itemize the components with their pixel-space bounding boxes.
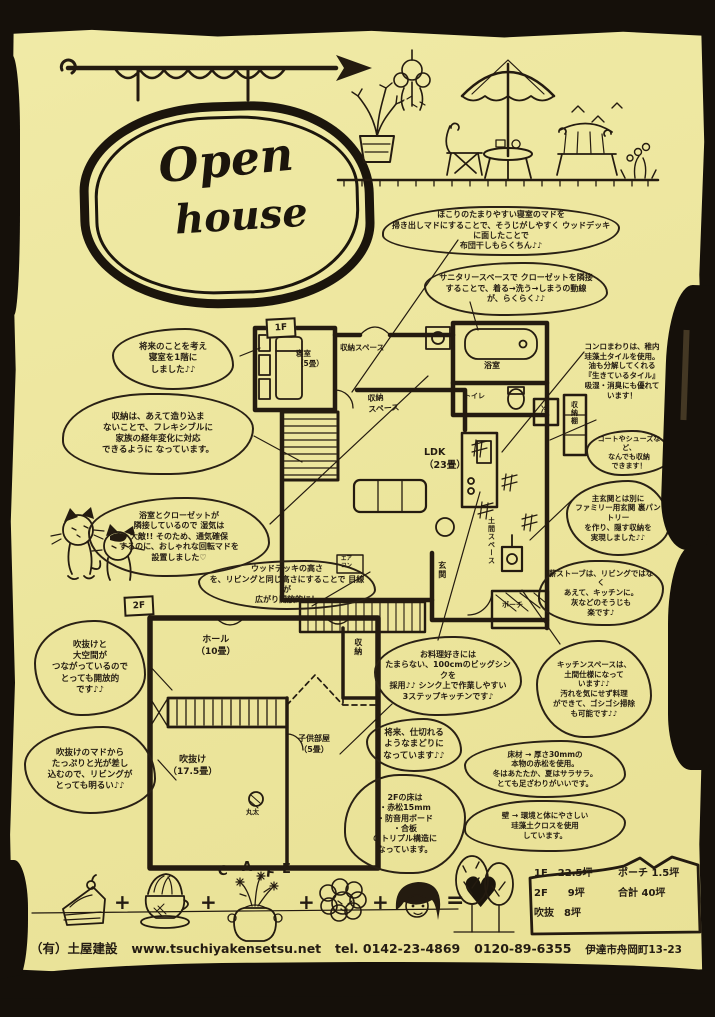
note-partition: 将来、仕切れる ようなまどりに なっています♪♪ [366,718,462,772]
area-table: 1F 22.5坪ポーチ 1.5坪 2F 9坪合計 40坪 吹抜 8坪 [534,864,698,924]
plus-sign: + [298,890,315,914]
note-wall-material: 壁 → 環境と体にやさしい 珪藻土クロスを使用 しています。 [464,800,626,852]
trees-icon [452,848,516,936]
teacup-icon [134,868,196,930]
footer-company: （有）土屋建設 [30,938,118,957]
cafe-equation: + + C A F E + [48,860,478,944]
plus-sign: + [200,890,217,914]
note-diatom-tile: コンロまわりは、稚内 珪藻土タイルを使用。 油も分解してくれる 『生きているタイ… [574,316,670,426]
note-bedroom-window: ほこりのたまりやすい寝室のマドを 掃き出しマドにすることで、そうじがしやすく ウ… [382,206,620,256]
note-void-open: 吹抜けと 大空間が つながっているので とっても開放的 です♪♪ [34,620,146,716]
rough-border-left-lower [0,860,28,980]
area-porch: ポーチ 1.5坪 [618,864,679,884]
cake-icon [54,874,112,932]
note-big-sink: お料理好きには たまらない、100cmのビッグシンクを 採用♪♪ シンク上で作業… [374,636,522,716]
note-floor-structure: 2Fの床は ・赤松15mm ・防音用ボード ・合板 のトリプル構造に なっていま… [344,774,466,874]
footer-address: 伊達市舟岡町13-23 [585,942,682,957]
note-shoe-storage: コートやシューズなど、 なんでも収納 できます！ [586,430,672,476]
cafe-vase-icon: C A F E [218,860,294,944]
note-kitchen-doma: キッチンスペースは、 土間仕様になって います♪♪ 汚れを気にせず料理 ができて… [536,640,652,738]
plus-sign: + [372,890,389,914]
area-2f: 2F 9坪 [534,884,618,904]
note-family-entrance: 主玄関とは別に ファミリー用玄関 裏パントリー を作り、隠す収納を 実現しました… [566,480,670,556]
rough-border-left [0,55,20,315]
rough-border-right-lower [668,545,715,770]
footer-freecall: 0120-89-6355 [474,941,571,956]
footer-url: www.tsuchiyakensetsu.net [131,941,321,956]
area-void: 吹抜 8坪 [534,904,618,924]
note-wood-stove: 薪ストーブは、リビングではなく あえて、キッチンに。 灰などのそうじも 楽です♪ [538,560,664,626]
plus-sign: + [114,890,131,914]
note-storage-flexible: 収納は、あえて造り込ま ないことで、フレキシブルに 家族の経年変化に対応 できる… [62,393,254,475]
face-curly-icon [316,876,370,930]
note-sanitary: サニタリースペースで クローゼットを隣接 することで、着る→洗う→しまうの動線 … [424,262,608,316]
flyer-canvas: Open house [0,0,715,1017]
footer-contact: （有）土屋建設 www.tsuchiyakensetsu.net tel. 01… [30,938,682,957]
footer-tel: tel. 0142-23-4869 [335,941,460,956]
note-wood-deck: ウッドデッキの高さ を、リビングと同じ高さにすることで 目線が 広がり開放的に！ [198,560,376,610]
area-total: 合計 40坪 [618,884,665,904]
face-straight-icon [390,874,446,930]
area-1f: 1F 22.5坪 [534,864,618,884]
